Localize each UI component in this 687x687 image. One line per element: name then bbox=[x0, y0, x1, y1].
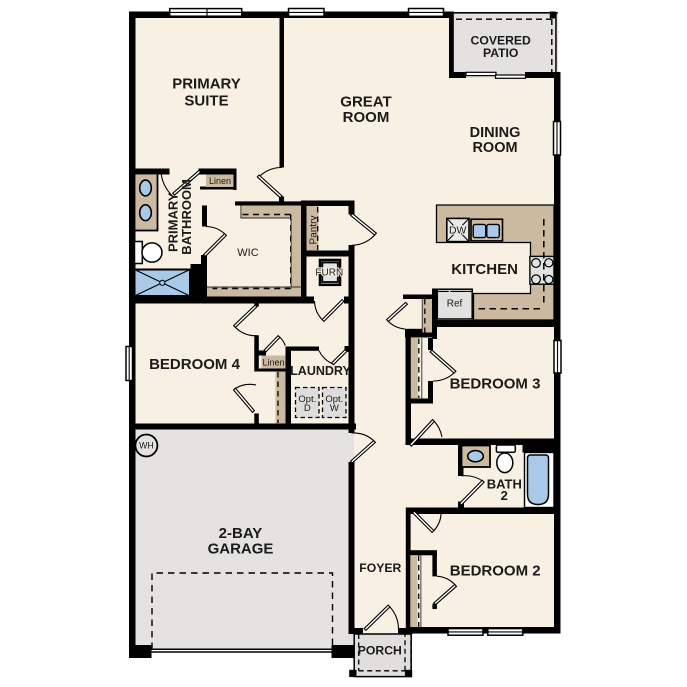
svg-text:Linen: Linen bbox=[262, 358, 284, 368]
svg-text:Linen: Linen bbox=[209, 176, 231, 186]
svg-text:BEDROOM 4: BEDROOM 4 bbox=[149, 356, 241, 373]
svg-text:PRIMARY: PRIMARY bbox=[172, 75, 241, 92]
svg-text:PATIO: PATIO bbox=[483, 46, 518, 60]
svg-text:DINING: DINING bbox=[470, 125, 521, 141]
svg-text:BATHROOM: BATHROOM bbox=[179, 179, 194, 255]
svg-text:D: D bbox=[304, 403, 311, 414]
svg-text:2: 2 bbox=[501, 488, 508, 503]
svg-text:GARAGE: GARAGE bbox=[208, 541, 274, 558]
svg-text:BEDROOM 3: BEDROOM 3 bbox=[450, 376, 541, 393]
svg-text:Pantry: Pantry bbox=[308, 216, 319, 245]
svg-text:GREAT: GREAT bbox=[340, 93, 391, 110]
svg-text:ROOM: ROOM bbox=[343, 109, 390, 126]
svg-text:FOYER: FOYER bbox=[359, 561, 401, 575]
svg-text:Ref: Ref bbox=[447, 298, 463, 309]
svg-text:LAUNDRY: LAUNDRY bbox=[290, 364, 351, 378]
svg-text:SUITE: SUITE bbox=[184, 93, 228, 110]
svg-text:WIC: WIC bbox=[237, 247, 258, 259]
svg-text:FURN: FURN bbox=[315, 268, 343, 279]
svg-text:2-BAY: 2-BAY bbox=[219, 525, 263, 542]
svg-text:KITCHEN: KITCHEN bbox=[451, 261, 518, 278]
svg-text:W: W bbox=[330, 403, 339, 414]
svg-text:PORCH: PORCH bbox=[358, 643, 402, 657]
svg-text:DW: DW bbox=[449, 225, 467, 237]
svg-text:ROOM: ROOM bbox=[472, 140, 517, 156]
svg-text:BEDROOM 2: BEDROOM 2 bbox=[450, 562, 541, 579]
svg-text:WH: WH bbox=[139, 441, 154, 451]
